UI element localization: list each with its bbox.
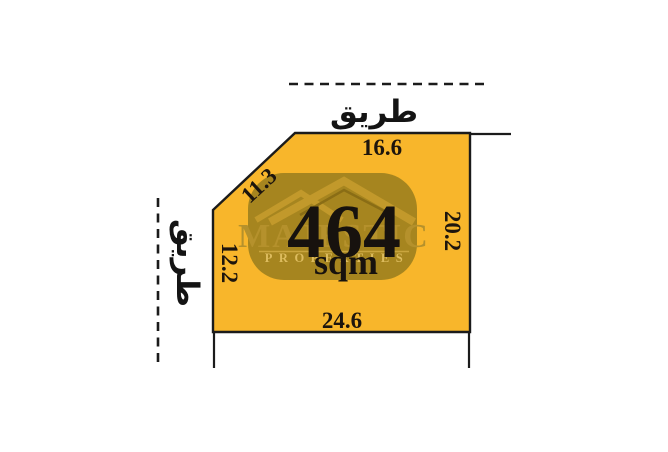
dimension-top: 16.6 — [362, 135, 402, 160]
dimension-bottom: 24.6 — [322, 308, 362, 333]
plot-diagram: طريق طريق MAJESTIC PROPERTIES 464 sqm 16… — [0, 0, 668, 452]
road-label-top: طريق — [330, 94, 418, 130]
dimension-left: 12.2 — [217, 243, 242, 283]
plot-diagram-svg: طريق طريق MAJESTIC PROPERTIES 464 sqm 16… — [0, 0, 668, 452]
plot-area-unit: sqm — [314, 242, 378, 282]
road-label-left: طريق — [169, 219, 205, 307]
dimension-right: 20.2 — [440, 211, 465, 251]
